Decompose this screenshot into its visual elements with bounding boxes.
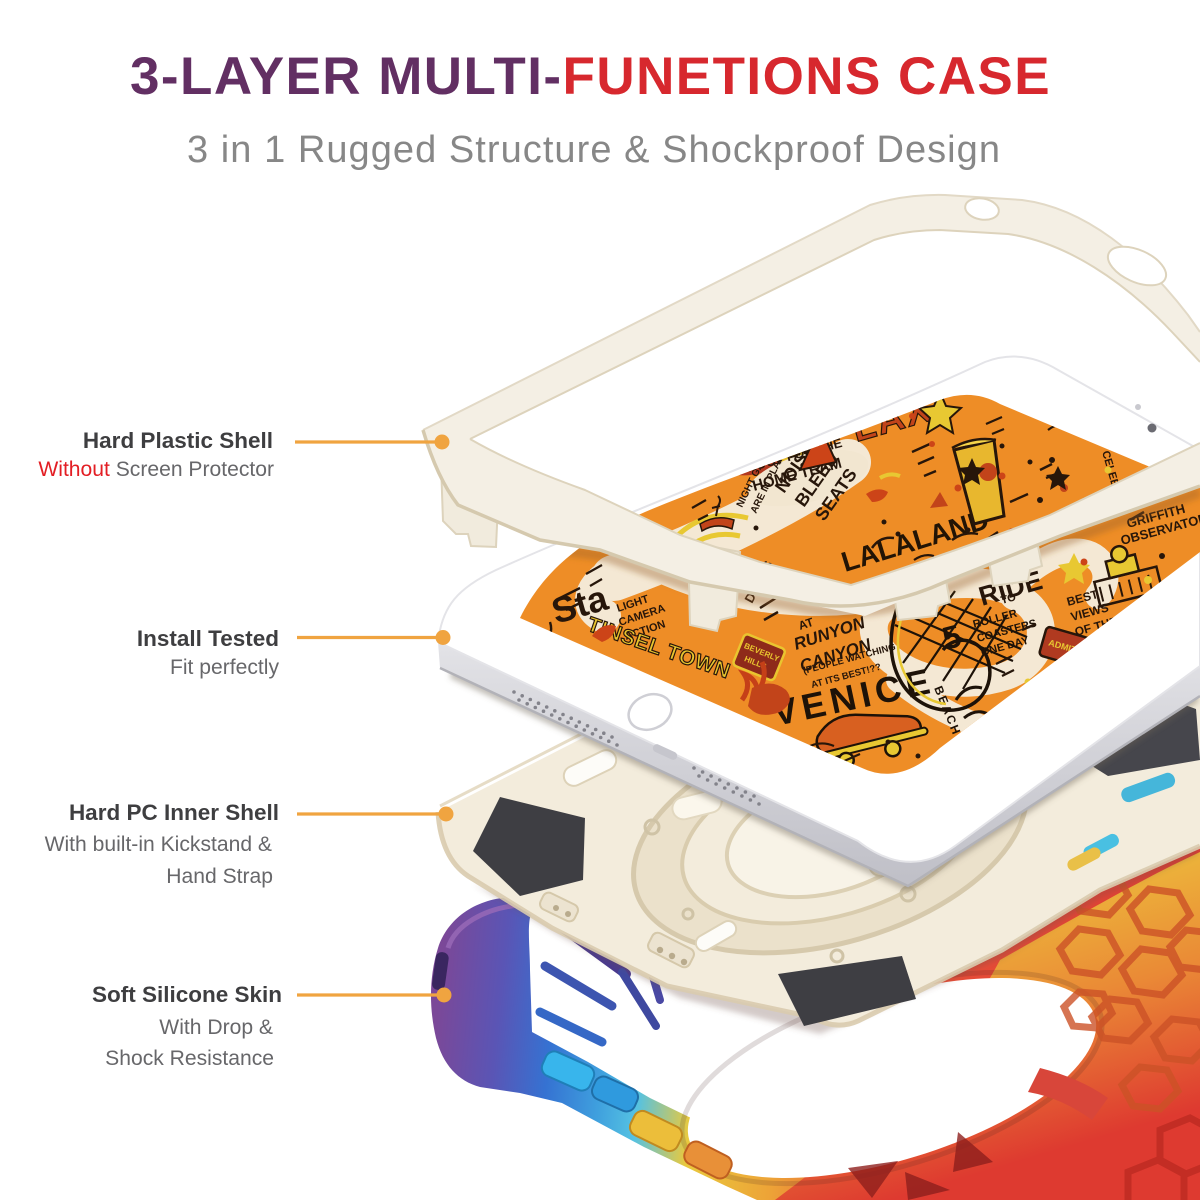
svg-text:FLYING: FLYING — [737, 382, 790, 410]
svg-text:GO: GO — [732, 435, 752, 451]
svg-text:IN TO: IN TO — [741, 403, 781, 428]
